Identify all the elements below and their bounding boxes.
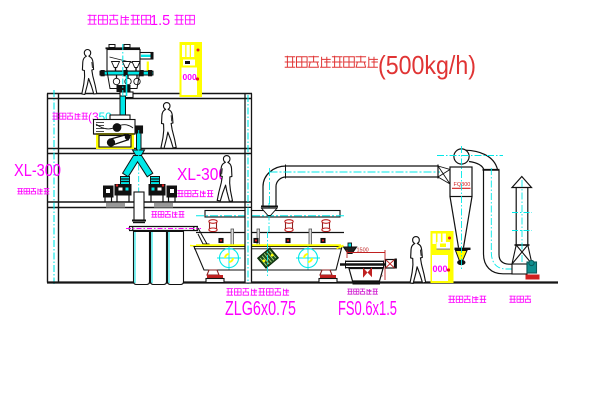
svg-text:000: 000 bbox=[183, 72, 197, 82]
svg-text:ZLG6x0.75: ZLG6x0.75 bbox=[225, 298, 296, 320]
svg-text:XL-300: XL-300 bbox=[14, 160, 61, 180]
svg-text:FS0.6x1.5: FS0.6x1.5 bbox=[338, 298, 397, 320]
svg-text:1.5: 1.5 bbox=[150, 13, 170, 29]
svg-text:1500: 1500 bbox=[357, 248, 369, 254]
svg-text:000: 000 bbox=[433, 264, 448, 274]
svg-text:XL-300: XL-300 bbox=[177, 164, 227, 184]
svg-text:(500kg/h): (500kg/h) bbox=[378, 50, 476, 80]
